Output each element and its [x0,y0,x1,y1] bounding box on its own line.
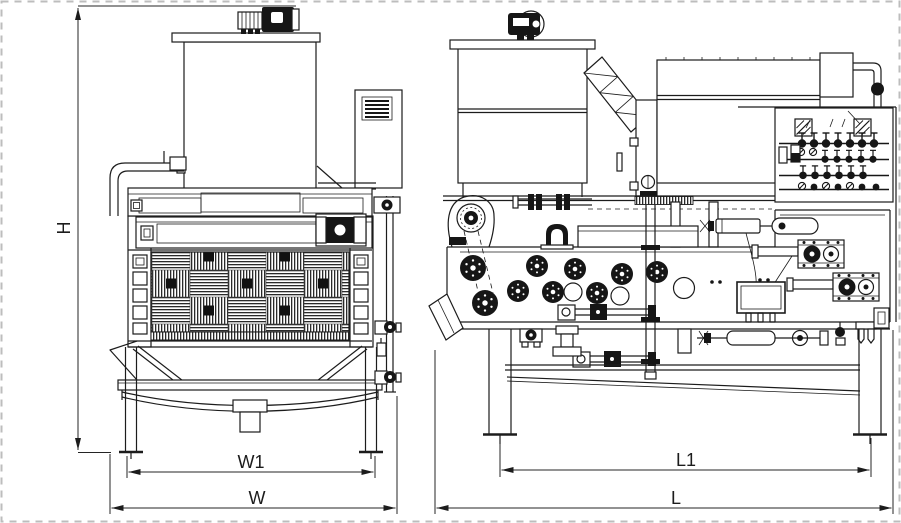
discharge-tray [110,341,382,432]
control-box [737,282,785,322]
control-cabinet [355,90,402,188]
dim-label-l1: L1 [676,450,696,470]
dim-label-l: L [671,488,681,508]
dimension-w1: W1 [127,452,375,478]
overflow-pipe [853,63,884,107]
mixing-tank [172,33,342,189]
frame-beams [128,188,372,248]
dimension-l1: L1 [500,438,871,477]
idle-roller [564,283,582,301]
front-view: H W1 W [54,6,402,514]
belt-drive [448,196,494,300]
idle-roller [611,287,629,305]
flocculation-tank [450,40,595,197]
side-view: L1 L [429,11,896,514]
tank-motor-end [508,11,544,40]
technical-drawing: H W1 W [0,0,901,523]
dim-label-w: W [249,488,266,508]
dim-label-h: H [54,222,74,235]
valve-manifold [775,108,893,202]
idle-roller [674,278,695,299]
tensioner [678,329,828,353]
side-pipe-fittings [374,196,401,392]
filter-belt [128,250,372,347]
dimension-l: L [435,330,893,514]
belt-drive-motor-front [316,214,366,246]
drawing-canvas: H W1 W [0,0,901,523]
agitator-motor [238,7,299,34]
dim-label-w1: W1 [238,452,265,472]
lower-brace [505,365,860,395]
discharge-chute-side [429,294,463,340]
spray-pipes [520,304,656,367]
rollers [460,255,770,316]
